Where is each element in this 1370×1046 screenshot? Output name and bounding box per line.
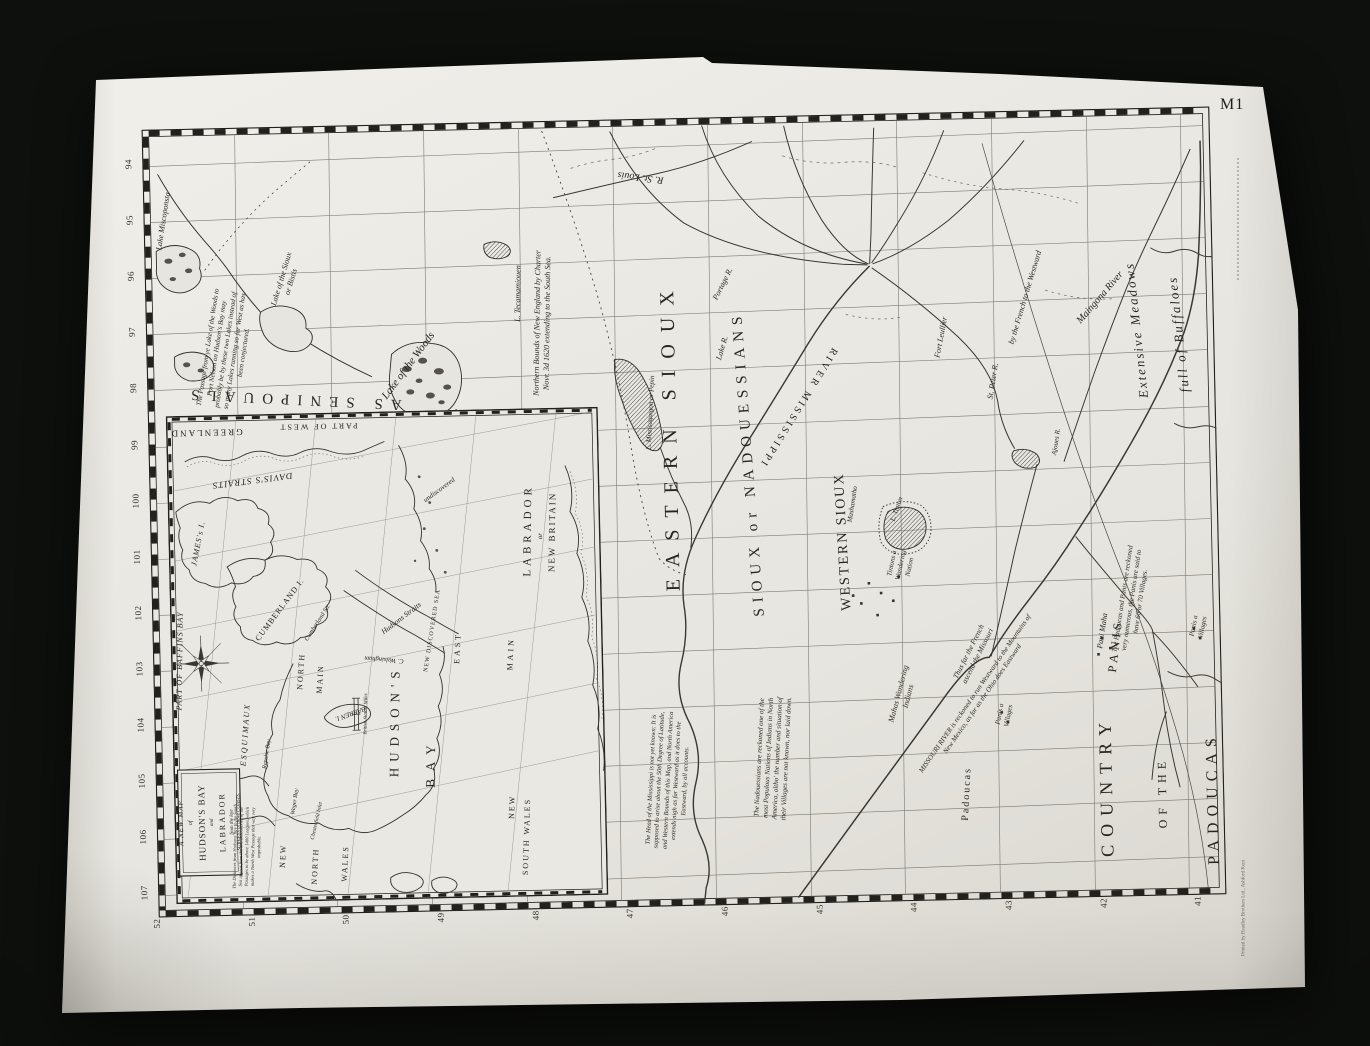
edge-latitude: 43 [1004, 900, 1014, 910]
edge-latitude: 51 [247, 916, 257, 926]
inset-distances-note: The Distances from Hudsons Bay to the So… [232, 800, 263, 892]
printer-imprint: Printed by Headley Brothers Ltd., Ashfor… [1242, 860, 1247, 956]
edge-longitude: 96 [126, 271, 136, 281]
margin-microtext-line [1237, 158, 1239, 282]
cartouche-line: HUDSON'S BAY [194, 770, 210, 874]
region-padoucas: PADOUCAS [1204, 732, 1223, 865]
main-map: EASTERN SIOUX SIOUX or NADOUESSIANS WEST… [142, 106, 1227, 917]
edge-latitude: 44 [909, 902, 919, 912]
edge-longitude: 100 [130, 493, 140, 508]
inset-label-labrador: LABRADOR [522, 484, 534, 577]
edge-longitude: 107 [139, 885, 149, 900]
inset-label-or: or [537, 533, 544, 539]
edge-latitude: 48 [531, 910, 541, 920]
label-tecamamiouen: L. Tecamamiouen [514, 265, 523, 322]
edge-longitude: 104 [135, 717, 145, 732]
edge-longitude: 103 [134, 661, 144, 676]
edge-longitude: 95 [124, 215, 134, 225]
edge-longitude: 94 [123, 159, 133, 169]
edge-longitude: 98 [128, 383, 138, 393]
inset-label-bay: BAY [424, 737, 438, 787]
edge-latitude: 47 [625, 908, 635, 918]
inset-label-greenland: GREENLAND [170, 427, 243, 438]
edge-latitude: 45 [815, 904, 825, 914]
edge-longitude: 105 [137, 773, 147, 788]
note-nadouessians: The Nadouessians are reckoned one of the… [752, 691, 795, 825]
edge-longitude: 102 [133, 605, 143, 620]
edge-longitude: 99 [129, 440, 139, 450]
edge-latitude: 42 [1099, 898, 1109, 908]
sheet-code: M1 [1220, 96, 1244, 114]
edge-latitude: 52 [152, 918, 162, 928]
inset-label-part-of-west: PART OF WEST [278, 421, 357, 431]
inset-label-east: EAST [453, 632, 463, 664]
inset-hudsons-bay-map: GREENLAND PART OF WEST DAVIS'S STRAITS J… [166, 407, 609, 904]
paper-sheet-wrap: M1 Printed by Headley Brothers Ltd., Ash… [0, 0, 1370, 1046]
inset-label-hudsons: HUDSON'S [387, 665, 401, 777]
edge-longitude: 101 [132, 549, 142, 564]
edge-latitude: 46 [720, 906, 730, 916]
note-mississippi-head: The Head of the Mississippi is not yet k… [644, 708, 693, 852]
edge-latitude: 50 [341, 914, 351, 924]
photo-of-antique-map: M1 Printed by Headley Brothers Ltd., Ash… [0, 0, 1370, 1046]
inset-label-new-2: NEW [508, 795, 517, 819]
paper-sheet: M1 Printed by Headley Brothers Ltd., Ash… [0, 0, 1370, 1046]
inset-label-baffins-bay: PART OF BAFFINS BAY [175, 612, 184, 711]
edge-longitude: 97 [127, 327, 137, 337]
inset-label-new-1: NEW [279, 844, 288, 869]
edge-latitude: 49 [436, 912, 446, 922]
inset-label-new-britain: NEW BRITAIN [547, 492, 557, 572]
note-new-england: Northern Bounds of New England by Charte… [531, 248, 554, 398]
edge-latitude: 41 [1192, 896, 1202, 906]
inset-label-main: MAIN [506, 637, 516, 671]
region-country: COUNTRY [1096, 715, 1117, 857]
region-of-the: OF THE [1155, 757, 1169, 829]
edge-longitude: 106 [138, 829, 148, 844]
inset-scale-label: British Statute Miles [364, 693, 370, 734]
